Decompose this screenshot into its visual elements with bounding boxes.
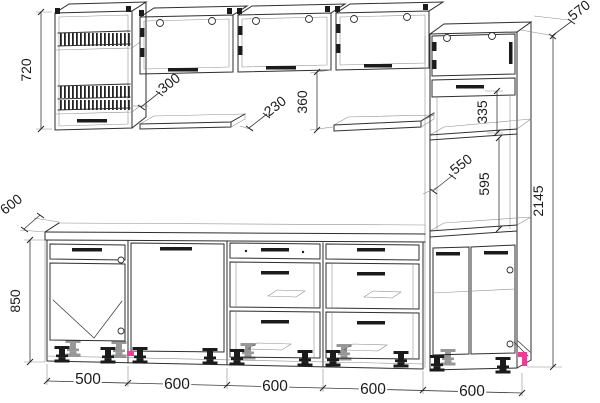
knob: [507, 341, 513, 347]
dim-600-label-1: 600: [164, 376, 190, 393]
dim-850-label: 850: [7, 289, 23, 313]
dim-720-label: 720: [18, 58, 34, 82]
dim-595-label: 595: [476, 172, 492, 196]
tall-upper-door: [432, 33, 515, 77]
tall-base-doors: [433, 245, 515, 355]
dim-230: 230: [240, 92, 289, 131]
dim-2145: 2145: [527, 33, 562, 370]
base-cabinet-row: [45, 223, 527, 374]
drawer-handle: [261, 320, 289, 324]
dim-850: 850: [7, 237, 45, 365]
fitting-hole: [157, 20, 164, 27]
fitting-hole: [209, 18, 216, 25]
dim-360-label: 360: [294, 90, 310, 114]
flap-handle: [77, 119, 107, 123]
drawer-handle: [261, 248, 289, 252]
dim-600-label-4: 600: [459, 383, 485, 400]
knob: [507, 267, 513, 273]
tall-shelf-2: [430, 217, 531, 237]
drawer-unit-2: [326, 244, 419, 359]
wall-shelf-right: [334, 113, 434, 131]
hinge: [337, 24, 341, 33]
door-handle: [484, 251, 508, 255]
hinge: [239, 26, 243, 35]
fitting-hole: [444, 35, 451, 42]
door-handle: [160, 247, 192, 251]
drawer-handle: [72, 248, 102, 252]
dim-600-label-2: 600: [262, 378, 288, 395]
dim-2145-label: 2145: [530, 185, 546, 216]
dish-rack-cabinet: [55, 2, 146, 130]
countertop: [45, 223, 425, 242]
technical-drawing: 720 300 230 360 570: [0, 0, 600, 403]
tall-drawer: [432, 78, 515, 97]
dim-570: 570: [521, 0, 593, 39]
fitting-hole: [351, 16, 358, 23]
dim-335-label: 335: [474, 100, 490, 124]
wall-cabinet-2: [139, 6, 247, 74]
hinge: [337, 44, 341, 53]
dim-360: 360: [294, 69, 333, 133]
door-handle: [509, 42, 513, 64]
dim-550-label: 550: [447, 150, 475, 177]
drawing-canvas: 720 300 230 360 570: [0, 0, 600, 403]
door-handle: [364, 64, 392, 68]
knob: [118, 328, 124, 334]
knob: [118, 257, 124, 263]
fitting-hole: [306, 16, 313, 23]
wall-cabinet-3: [237, 4, 345, 72]
hinge: [141, 48, 145, 57]
dim-600-depth: 600: [0, 190, 59, 232]
door-handle: [266, 66, 296, 70]
hinge: [141, 28, 145, 37]
drawer-unit-1: [230, 243, 320, 358]
drawer-handle: [261, 271, 289, 275]
dim-595: 595: [476, 135, 502, 232]
drawer-handle: [357, 321, 385, 325]
base-cabinet-door-600: [131, 243, 224, 352]
wall-cabinet-row: [55, 2, 443, 131]
plate-rack-bottom: [56, 84, 140, 114]
dim-550: 550: [423, 150, 475, 194]
hinge: [433, 60, 437, 69]
dim-600-depth-label: 600: [0, 190, 25, 217]
dimensions: 720 300 230 360 570: [0, 0, 593, 400]
adjustable-feet: [55, 340, 511, 374]
base-cabinet-500: [50, 244, 125, 341]
fitting-hole: [404, 14, 411, 21]
plate-rack-top: [56, 31, 140, 50]
hinge: [433, 42, 437, 51]
fitting-hole: [489, 33, 496, 40]
wall-shelf-left: [140, 114, 245, 129]
dim-600-label-3: 600: [360, 381, 386, 398]
hinge: [239, 46, 243, 55]
dim-720: 720: [18, 9, 52, 132]
fitting-hole: [253, 18, 260, 25]
drawer-handle: [357, 248, 385, 252]
wall-cabinet-4: [335, 2, 443, 70]
drawer-handle: [357, 272, 385, 276]
dim-500-label: 500: [75, 371, 101, 388]
door-handle: [436, 252, 460, 256]
dim-300: 300: [133, 69, 183, 110]
drawer-handle: [456, 85, 484, 89]
